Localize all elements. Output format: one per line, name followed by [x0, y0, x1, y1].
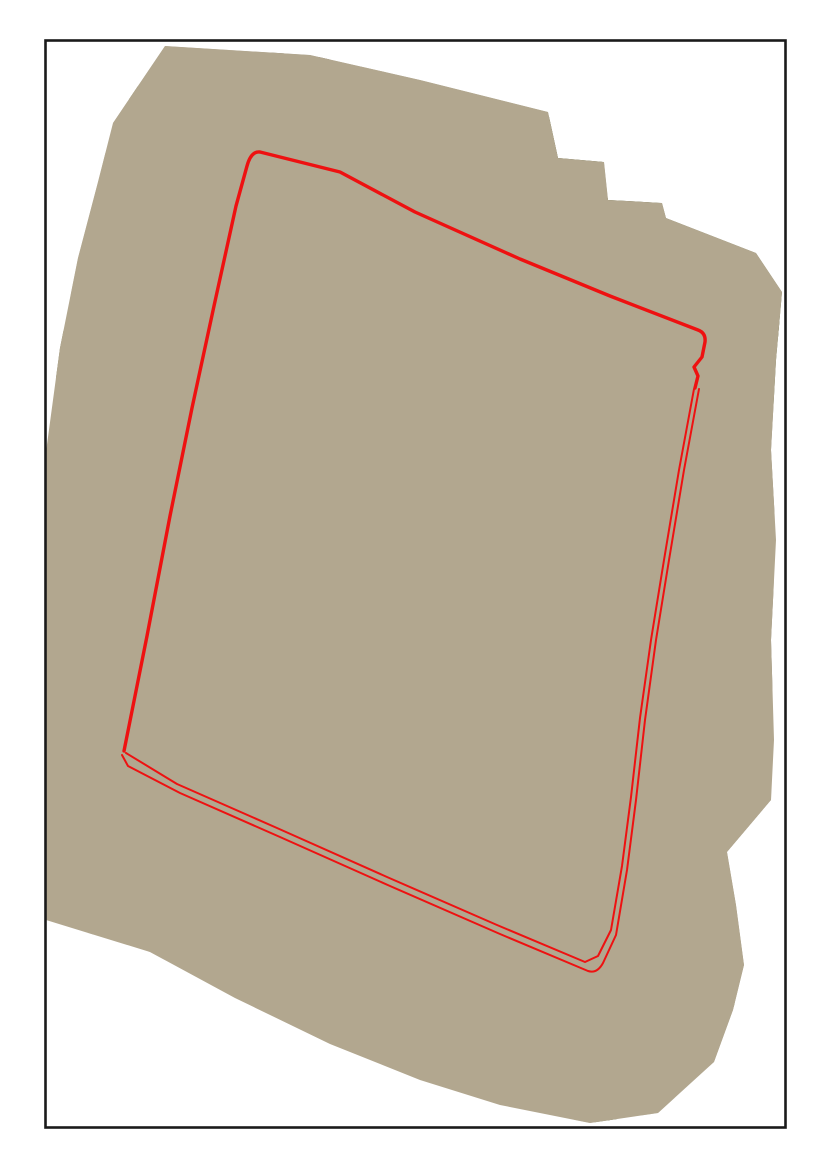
orthophoto-page	[0, 0, 830, 1174]
aerial-orthophoto-map	[0, 0, 830, 1174]
